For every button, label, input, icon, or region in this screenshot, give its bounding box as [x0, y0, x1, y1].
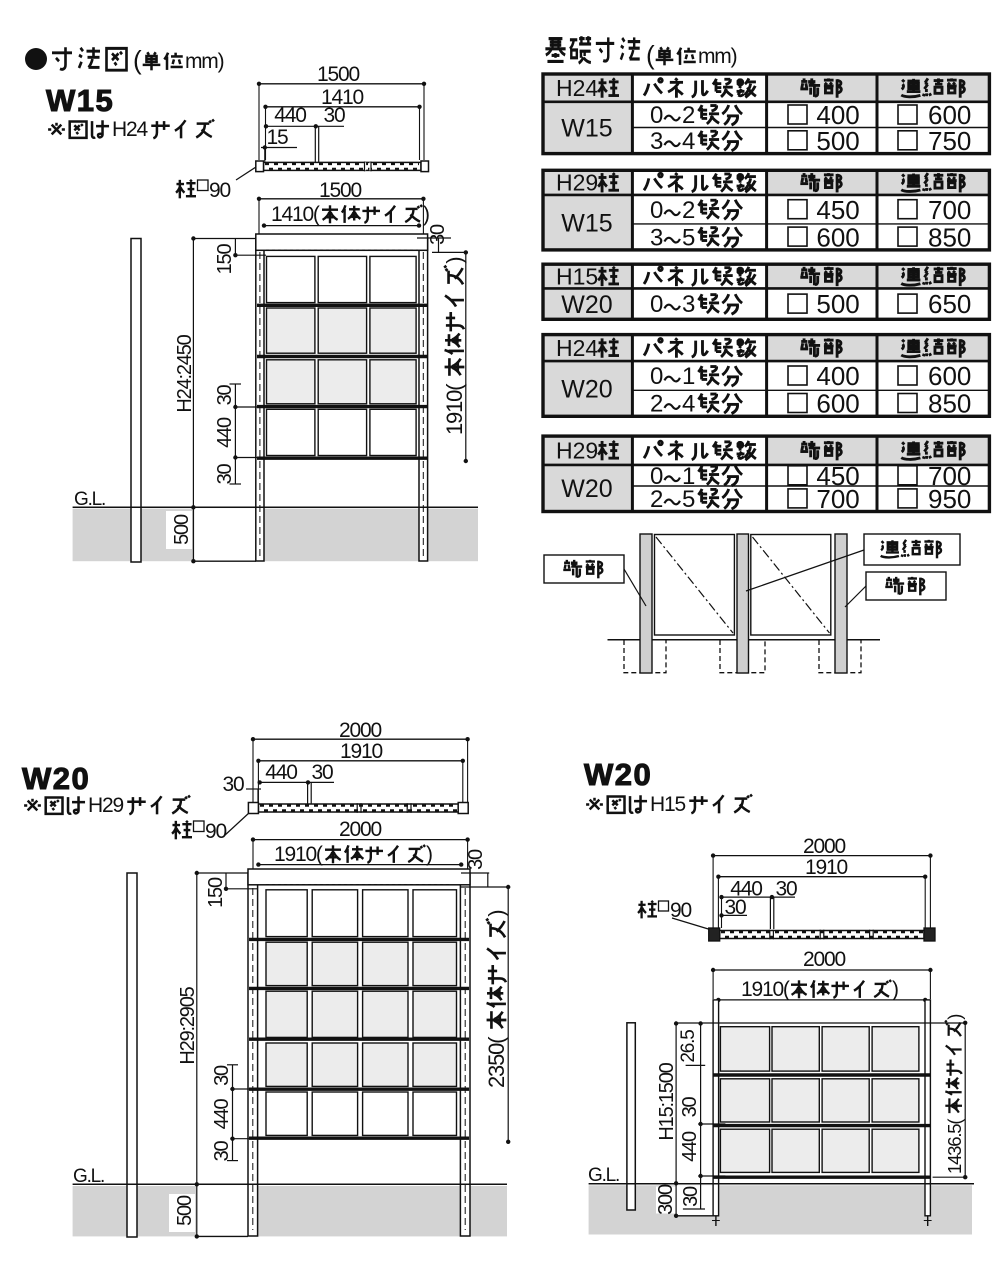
- svg-text:30: 30: [465, 849, 487, 870]
- svg-text:0: 0: [650, 197, 663, 224]
- svg-text:3: 3: [650, 128, 663, 155]
- svg-text:440: 440: [211, 1099, 233, 1130]
- svg-text:5: 5: [682, 224, 695, 251]
- svg-text:): ): [892, 978, 898, 1001]
- svg-text:90: 90: [205, 820, 226, 843]
- svg-text:4: 4: [682, 128, 695, 155]
- svg-text:2: 2: [650, 391, 663, 418]
- svg-text:850: 850: [928, 222, 971, 252]
- svg-text:3: 3: [650, 224, 663, 251]
- svg-text:W20: W20: [561, 475, 612, 503]
- svg-text:0: 0: [650, 363, 663, 390]
- svg-text:700: 700: [816, 484, 859, 514]
- svg-text:150: 150: [214, 244, 236, 275]
- svg-text:850: 850: [928, 389, 971, 419]
- svg-text:): ): [442, 258, 467, 264]
- svg-text:30: 30: [214, 464, 236, 485]
- svg-text:): ): [484, 911, 509, 917]
- svg-text:H29: H29: [556, 170, 598, 196]
- svg-text:440: 440: [214, 417, 236, 448]
- svg-text:3: 3: [682, 291, 695, 318]
- svg-text:W15: W15: [561, 115, 612, 143]
- svg-text:H24: H24: [556, 75, 598, 101]
- svg-text:2000: 2000: [803, 948, 845, 971]
- svg-text:1: 1: [682, 363, 695, 390]
- svg-text:30: 30: [427, 224, 449, 245]
- svg-text:30: 30: [312, 761, 333, 784]
- svg-text:15: 15: [267, 126, 288, 149]
- svg-text:5: 5: [682, 486, 695, 513]
- svg-text:1910(: 1910(: [442, 383, 467, 435]
- svg-text:600: 600: [816, 222, 859, 252]
- svg-text:30: 30: [324, 104, 345, 127]
- svg-text:1436.5(: 1436.5(: [944, 1118, 965, 1174]
- svg-text:400: 400: [816, 361, 859, 391]
- svg-text:1910: 1910: [805, 856, 847, 879]
- svg-text:2350(: 2350(: [484, 1036, 509, 1088]
- svg-text:300: 300: [655, 1184, 677, 1215]
- svg-text:H24: H24: [556, 335, 598, 361]
- svg-text:mm): mm): [698, 45, 737, 68]
- svg-text:2000: 2000: [803, 835, 845, 858]
- svg-text:500: 500: [171, 514, 193, 545]
- svg-text:W15: W15: [46, 83, 114, 118]
- svg-text:30: 30: [680, 1186, 702, 1207]
- svg-text:H29:2905: H29:2905: [177, 986, 199, 1064]
- svg-text:950: 950: [928, 484, 971, 514]
- svg-text:W20: W20: [22, 761, 90, 796]
- svg-text:450: 450: [816, 195, 859, 225]
- svg-text:440: 440: [274, 104, 306, 127]
- svg-text:600: 600: [816, 389, 859, 419]
- svg-text:): ): [426, 843, 432, 866]
- svg-text:mm): mm): [185, 50, 224, 73]
- svg-text:1910(: 1910(: [274, 843, 323, 866]
- svg-text:750: 750: [928, 126, 971, 156]
- svg-text:500: 500: [816, 126, 859, 156]
- svg-text:1910: 1910: [340, 740, 382, 763]
- svg-text:0: 0: [650, 102, 663, 129]
- svg-text:2: 2: [682, 102, 695, 129]
- svg-text:(: (: [133, 45, 142, 75]
- svg-text:650: 650: [928, 289, 971, 319]
- svg-text:150: 150: [205, 877, 227, 908]
- svg-text:4: 4: [682, 391, 695, 418]
- svg-text:1410(: 1410(: [271, 203, 320, 226]
- svg-text:H15:1500: H15:1500: [656, 1062, 678, 1140]
- svg-text:H15: H15: [650, 793, 685, 816]
- svg-text:500: 500: [174, 1195, 196, 1226]
- svg-text:440: 440: [265, 761, 297, 784]
- svg-text:30: 30: [211, 1065, 233, 1086]
- svg-text:26.5: 26.5: [678, 1030, 699, 1063]
- svg-text:30: 30: [211, 1141, 233, 1162]
- svg-text:H29: H29: [88, 794, 123, 817]
- svg-text:W20: W20: [561, 376, 612, 404]
- svg-text:30: 30: [214, 385, 236, 406]
- svg-text:): ): [423, 203, 429, 226]
- svg-text:1910(: 1910(: [741, 978, 790, 1001]
- svg-text:H29: H29: [556, 438, 598, 464]
- svg-text:W15: W15: [561, 209, 612, 237]
- svg-text:1500: 1500: [317, 63, 359, 86]
- svg-text:2: 2: [650, 486, 663, 513]
- svg-text:0: 0: [650, 291, 663, 318]
- svg-text:H15: H15: [556, 263, 598, 289]
- svg-text:H24:2450: H24:2450: [174, 334, 196, 412]
- svg-text:90: 90: [209, 179, 230, 202]
- svg-text:30: 30: [679, 1097, 701, 1118]
- svg-text:30: 30: [223, 773, 244, 796]
- svg-text:W20: W20: [561, 291, 612, 319]
- svg-text:500: 500: [816, 289, 859, 319]
- svg-text:700: 700: [928, 195, 971, 225]
- svg-text:W20: W20: [584, 757, 652, 792]
- svg-text:2: 2: [682, 197, 695, 224]
- svg-text:H24: H24: [112, 118, 148, 141]
- svg-text:2000: 2000: [339, 818, 381, 841]
- svg-text:600: 600: [928, 361, 971, 391]
- svg-text:(: (: [646, 40, 655, 70]
- svg-text:440: 440: [679, 1131, 701, 1162]
- svg-text:G.L.: G.L.: [588, 1165, 619, 1186]
